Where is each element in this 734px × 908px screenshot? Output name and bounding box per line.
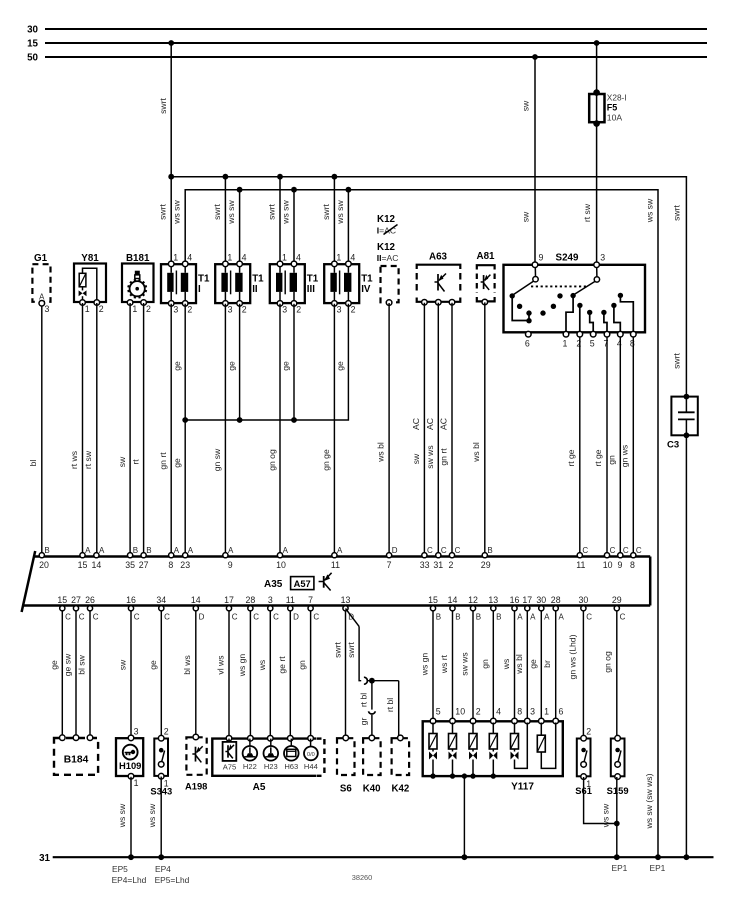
- svg-text:EP4: EP4: [155, 864, 171, 874]
- svg-text:C: C: [313, 612, 319, 621]
- svg-text:29: 29: [481, 560, 491, 570]
- svg-text:A198: A198: [185, 780, 207, 791]
- svg-text:2: 2: [164, 727, 169, 737]
- svg-text:bl ws: bl ws: [182, 655, 192, 675]
- svg-text:EP5=Lhd: EP5=Lhd: [155, 875, 190, 885]
- svg-text:swrt: swrt: [672, 205, 682, 221]
- svg-text:rt bl: rt bl: [358, 693, 368, 707]
- svg-text:1: 1: [563, 339, 568, 349]
- svg-text:A: A: [174, 546, 180, 555]
- svg-text:50: 50: [27, 53, 38, 64]
- svg-text:gr: gr: [358, 718, 368, 726]
- svg-text:gn rt: gn rt: [439, 448, 449, 466]
- svg-text:8: 8: [630, 339, 635, 349]
- svg-text:ws sw: ws sw: [117, 803, 127, 828]
- svg-text:4: 4: [242, 253, 247, 263]
- svg-text:C: C: [623, 546, 629, 555]
- svg-text:C3: C3: [667, 440, 679, 451]
- svg-text:34: 34: [156, 595, 166, 605]
- svg-text:gn ws (Lhd): gn ws (Lhd): [568, 634, 578, 679]
- svg-text:1: 1: [336, 253, 341, 263]
- svg-text:B181: B181: [126, 253, 150, 264]
- svg-text:ws sw: ws sw: [226, 200, 236, 225]
- svg-text:C: C: [65, 612, 71, 621]
- svg-text:2: 2: [586, 726, 591, 736]
- svg-text:3: 3: [530, 707, 535, 717]
- svg-text:7: 7: [604, 339, 609, 349]
- svg-text:gn og: gn og: [267, 449, 277, 471]
- svg-text:13: 13: [341, 595, 351, 605]
- svg-text:C: C: [93, 612, 99, 621]
- svg-text:F5: F5: [607, 103, 618, 113]
- svg-text:23: 23: [180, 560, 190, 570]
- svg-text:C: C: [582, 546, 588, 555]
- svg-text:3: 3: [134, 727, 139, 737]
- svg-text:ws gn: ws gn: [420, 653, 430, 677]
- svg-text:ws: ws: [501, 659, 511, 671]
- svg-text:swrt: swrt: [158, 204, 168, 220]
- svg-text:ws sw: ws sw: [335, 200, 345, 225]
- svg-text:rt sw: rt sw: [83, 450, 93, 469]
- svg-text:B: B: [146, 546, 151, 555]
- svg-text:sw: sw: [117, 456, 127, 467]
- svg-text:14: 14: [92, 560, 102, 570]
- svg-text:10A: 10A: [607, 113, 623, 123]
- svg-text:gn og: gn og: [603, 651, 613, 673]
- svg-text:2: 2: [476, 707, 481, 717]
- svg-text:A: A: [530, 612, 536, 621]
- svg-text:swrt: swrt: [672, 353, 682, 369]
- svg-text:1: 1: [132, 304, 137, 314]
- svg-text:33: 33: [420, 560, 430, 570]
- svg-text:S159: S159: [607, 785, 629, 796]
- svg-text:sw ws: sw ws: [425, 445, 435, 468]
- svg-text:10: 10: [603, 560, 613, 570]
- svg-text:11: 11: [576, 560, 585, 570]
- svg-text:15: 15: [57, 595, 67, 605]
- svg-text:13: 13: [488, 595, 498, 605]
- svg-text:ws: ws: [257, 660, 267, 672]
- svg-text:AC: AC: [439, 418, 449, 430]
- svg-text:5: 5: [590, 339, 595, 349]
- svg-text:9: 9: [618, 560, 623, 570]
- svg-text:C: C: [253, 612, 259, 621]
- svg-text:gn rt: gn rt: [158, 452, 168, 470]
- svg-text:D: D: [392, 546, 398, 555]
- svg-text:1: 1: [282, 253, 287, 263]
- svg-text:H109: H109: [119, 760, 141, 771]
- svg-text:EP4=Lhd: EP4=Lhd: [112, 875, 147, 885]
- svg-text:K12: K12: [377, 214, 396, 225]
- svg-text:A57: A57: [294, 579, 311, 589]
- svg-text:sw: sw: [118, 659, 128, 670]
- svg-text:III: III: [307, 284, 315, 295]
- svg-text:28: 28: [551, 595, 561, 605]
- svg-text:27: 27: [139, 560, 149, 570]
- svg-text:ge: ge: [172, 458, 182, 468]
- svg-text:C: C: [610, 546, 616, 555]
- svg-text:4: 4: [187, 253, 192, 263]
- svg-text:T1: T1: [361, 273, 373, 284]
- svg-text:D: D: [199, 612, 205, 621]
- svg-text:2: 2: [146, 304, 151, 314]
- svg-text:ge: ge: [528, 659, 538, 669]
- svg-text:C: C: [232, 612, 238, 621]
- svg-text:rt ge: rt ge: [566, 449, 576, 466]
- svg-text:C: C: [441, 546, 447, 555]
- svg-text:ws sw: ws sw: [601, 803, 611, 828]
- svg-text:2: 2: [449, 560, 454, 570]
- svg-text:4: 4: [296, 253, 301, 263]
- svg-text:swrt: swrt: [212, 204, 222, 220]
- svg-text:br: br: [542, 660, 552, 668]
- svg-text:27: 27: [71, 595, 81, 605]
- svg-text:3: 3: [282, 304, 287, 314]
- svg-text:A: A: [559, 612, 565, 621]
- svg-text:11: 11: [331, 560, 340, 570]
- svg-text:3: 3: [173, 304, 178, 314]
- svg-text:gn ws: gn ws: [619, 445, 629, 467]
- svg-text:14: 14: [448, 595, 458, 605]
- svg-text:B: B: [436, 612, 441, 621]
- svg-text:7: 7: [308, 595, 313, 605]
- svg-text:ws sw (sw ws): ws sw (sw ws): [644, 773, 654, 829]
- svg-text:vl ws: vl ws: [216, 655, 226, 674]
- svg-text:1: 1: [134, 778, 139, 788]
- svg-text:II: II: [252, 284, 258, 295]
- svg-text:4: 4: [617, 339, 622, 349]
- svg-text:EP1: EP1: [650, 863, 666, 873]
- svg-text:bl sw: bl sw: [77, 654, 87, 674]
- svg-text:3: 3: [45, 304, 50, 314]
- svg-text:gn: gn: [606, 455, 616, 465]
- svg-text:rt ge: rt ge: [593, 449, 603, 466]
- svg-text:T1: T1: [252, 273, 264, 284]
- svg-text:10: 10: [455, 707, 465, 717]
- svg-text:ge sw: ge sw: [63, 653, 73, 676]
- svg-text:15: 15: [27, 39, 38, 50]
- svg-text:A: A: [188, 546, 194, 555]
- svg-text:A: A: [85, 546, 91, 555]
- svg-text:8: 8: [517, 707, 522, 717]
- svg-text:31: 31: [433, 560, 443, 570]
- svg-text:rt: rt: [131, 459, 141, 465]
- svg-text:ge: ge: [226, 361, 236, 371]
- svg-text:EP1: EP1: [612, 863, 628, 873]
- svg-text:8: 8: [630, 560, 635, 570]
- svg-text:1: 1: [85, 304, 90, 314]
- svg-text:5: 5: [436, 707, 441, 717]
- svg-text:sw: sw: [411, 453, 421, 464]
- svg-text:K40: K40: [363, 784, 381, 795]
- svg-text:38260: 38260: [352, 873, 373, 882]
- svg-text:K42: K42: [392, 784, 410, 795]
- svg-text:2: 2: [99, 304, 104, 314]
- svg-text:sw ws: sw ws: [460, 652, 470, 675]
- svg-text:12: 12: [468, 595, 478, 605]
- svg-text:X28-I: X28-I: [607, 93, 627, 103]
- svg-text:B: B: [476, 612, 481, 621]
- svg-text:B: B: [133, 546, 138, 555]
- svg-text:9: 9: [228, 560, 233, 570]
- svg-text:C: C: [620, 612, 626, 621]
- svg-text:A: A: [228, 546, 234, 555]
- svg-text:ws rt: ws rt: [439, 654, 449, 674]
- svg-text:A5: A5: [253, 782, 266, 793]
- svg-text:gn ge: gn ge: [321, 449, 331, 471]
- svg-text:6: 6: [559, 707, 564, 717]
- svg-text:bl: bl: [28, 460, 38, 467]
- svg-text:2: 2: [576, 339, 581, 349]
- svg-text:sw: sw: [521, 211, 531, 222]
- svg-text:I: I: [198, 284, 201, 295]
- svg-text:ws sw: ws sw: [147, 803, 157, 828]
- svg-text:rt ws: rt ws: [69, 451, 79, 469]
- svg-text:II=AC: II=AC: [377, 253, 399, 263]
- svg-text:H22: H22: [243, 762, 257, 771]
- svg-text:2: 2: [187, 304, 192, 314]
- svg-text:20: 20: [39, 560, 49, 570]
- svg-text:1: 1: [173, 253, 178, 263]
- svg-text:7: 7: [387, 560, 392, 570]
- svg-text:C: C: [455, 546, 461, 555]
- svg-text:B: B: [496, 612, 501, 621]
- svg-text:2: 2: [351, 304, 356, 314]
- svg-text:29: 29: [612, 595, 622, 605]
- svg-text:D: D: [293, 612, 299, 621]
- svg-text:3: 3: [268, 595, 273, 605]
- svg-text:AC: AC: [411, 418, 421, 430]
- svg-text:A: A: [337, 546, 343, 555]
- svg-text:rt sw: rt sw: [582, 203, 592, 222]
- svg-text:B: B: [44, 546, 49, 555]
- svg-text:ws sw: ws sw: [172, 200, 182, 225]
- svg-text:3: 3: [600, 252, 605, 262]
- svg-text:11: 11: [286, 595, 295, 605]
- svg-text:IV: IV: [361, 284, 371, 295]
- svg-text:ws gn: ws gn: [237, 654, 247, 678]
- svg-text:A35: A35: [264, 579, 283, 590]
- svg-text:T1: T1: [307, 273, 319, 284]
- svg-text:C: C: [586, 612, 592, 621]
- svg-text:B: B: [455, 612, 460, 621]
- svg-text:ws sw: ws sw: [645, 198, 655, 223]
- svg-text:H63: H63: [284, 762, 298, 771]
- svg-text:S249: S249: [556, 252, 579, 263]
- svg-text:B: B: [487, 546, 492, 555]
- svg-text:30: 30: [27, 25, 38, 36]
- svg-text:1: 1: [227, 253, 232, 263]
- svg-text:15: 15: [78, 560, 88, 570]
- svg-text:C: C: [79, 612, 85, 621]
- svg-text:14: 14: [191, 595, 201, 605]
- svg-text:A75: A75: [223, 763, 237, 772]
- svg-text:Y117: Y117: [511, 782, 534, 793]
- svg-text:swrt: swrt: [332, 642, 342, 658]
- svg-text:C: C: [164, 612, 170, 621]
- svg-text:K12: K12: [377, 242, 396, 253]
- svg-text:gn sw: gn sw: [212, 448, 222, 471]
- svg-text:4: 4: [496, 707, 501, 717]
- svg-text:A81: A81: [477, 251, 496, 262]
- svg-text:B184: B184: [64, 755, 89, 766]
- svg-text:ge rt: ge rt: [277, 656, 287, 674]
- svg-text:ws bl: ws bl: [514, 654, 524, 675]
- svg-text:ge: ge: [49, 660, 59, 670]
- svg-text:C: C: [636, 546, 642, 555]
- svg-text:ge: ge: [335, 361, 345, 371]
- svg-text:A: A: [99, 546, 105, 555]
- svg-text:10: 10: [276, 560, 286, 570]
- svg-text:3: 3: [228, 304, 233, 314]
- svg-text:16: 16: [126, 595, 136, 605]
- svg-text:T1: T1: [198, 273, 210, 284]
- svg-text:S6: S6: [340, 784, 352, 795]
- svg-text:H23: H23: [264, 762, 278, 771]
- svg-text:C: C: [427, 546, 433, 555]
- svg-text:17: 17: [522, 595, 532, 605]
- svg-text:ws bl: ws bl: [375, 442, 385, 463]
- svg-text:swrt: swrt: [158, 98, 168, 114]
- svg-text:ge: ge: [172, 361, 182, 371]
- svg-text:15: 15: [428, 595, 438, 605]
- svg-text:ws sw: ws sw: [281, 200, 291, 225]
- svg-text:A: A: [283, 546, 289, 555]
- svg-text:30: 30: [536, 595, 546, 605]
- svg-text:35: 35: [125, 560, 135, 570]
- svg-text:gn: gn: [297, 660, 307, 670]
- svg-text:A: A: [517, 612, 523, 621]
- svg-text:31: 31: [39, 853, 50, 864]
- svg-text:6: 6: [525, 339, 530, 349]
- svg-text:ge: ge: [281, 361, 291, 371]
- svg-text:26: 26: [85, 595, 95, 605]
- svg-text:3: 3: [337, 304, 342, 314]
- svg-text:30: 30: [579, 595, 589, 605]
- svg-text:8: 8: [168, 560, 173, 570]
- svg-text:sw: sw: [521, 100, 531, 111]
- svg-text:4: 4: [350, 253, 355, 263]
- svg-text:17: 17: [224, 595, 234, 605]
- svg-text:2: 2: [242, 304, 247, 314]
- svg-text:A63: A63: [429, 252, 448, 263]
- svg-text:9: 9: [539, 252, 544, 262]
- svg-text:C: C: [273, 612, 279, 621]
- svg-text:ge: ge: [148, 660, 158, 670]
- svg-text:28: 28: [246, 595, 256, 605]
- svg-text:16: 16: [510, 595, 520, 605]
- svg-text:rt bl: rt bl: [385, 698, 395, 712]
- svg-text:1: 1: [544, 707, 549, 717]
- svg-text:EP5: EP5: [112, 864, 128, 874]
- svg-text:A: A: [544, 612, 550, 621]
- svg-text:C: C: [134, 612, 140, 621]
- svg-text:G1: G1: [34, 253, 48, 264]
- svg-text:H44: H44: [304, 762, 318, 771]
- svg-text:ws bl: ws bl: [471, 442, 481, 463]
- svg-text:swrt: swrt: [267, 204, 277, 220]
- svg-text:gn: gn: [480, 659, 490, 669]
- svg-text:Y81: Y81: [81, 253, 99, 264]
- svg-text:1: 1: [586, 779, 591, 789]
- svg-text:0/0: 0/0: [307, 752, 315, 758]
- svg-text:swrt: swrt: [321, 204, 331, 220]
- svg-text:swrt: swrt: [346, 642, 356, 658]
- svg-text:AC: AC: [425, 418, 435, 430]
- svg-text:2: 2: [296, 304, 301, 314]
